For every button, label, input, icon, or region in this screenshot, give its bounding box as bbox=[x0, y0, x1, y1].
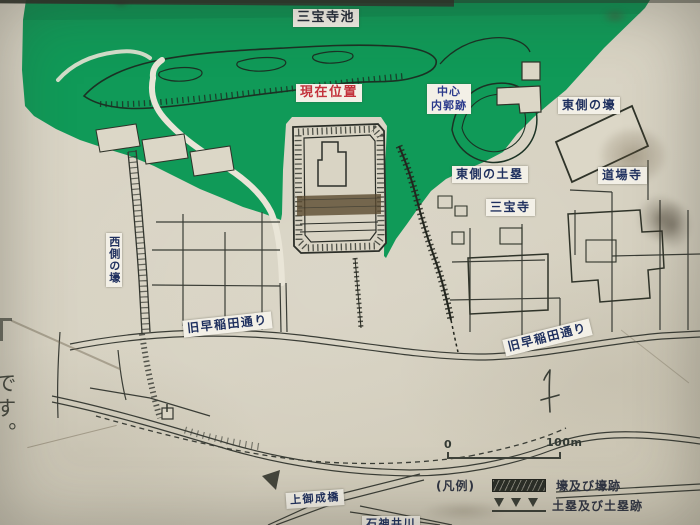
legend-heading: (凡例) bbox=[436, 477, 475, 494]
triangle-icon bbox=[494, 498, 504, 507]
label-pond-name: 三宝寺池 bbox=[293, 9, 359, 27]
label-inner-ward-line2: 内郭跡 bbox=[431, 99, 467, 113]
legend-earthwork-label: 土塁及び土塁跡 bbox=[552, 497, 643, 514]
label-east-moat: 東側の壕 bbox=[558, 97, 620, 114]
label-inner-ward: 中心 内郭跡 bbox=[427, 84, 471, 114]
triangle-icon bbox=[511, 498, 521, 507]
label-shakujii-river: 石神井川 bbox=[362, 516, 420, 525]
clipped-character-fragment bbox=[0, 318, 12, 341]
label-east-earthwork: 東側の土塁 bbox=[452, 166, 528, 183]
map-sign-photo: 三宝寺池 現在位置 中心 内郭跡 東側の壕 道場寺 東側の土塁 三宝寺 西側の壕… bbox=[0, 0, 700, 525]
label-current-location: 現在位置 bbox=[296, 84, 362, 102]
scale-start-label: 0 bbox=[444, 438, 452, 451]
west-moat-strip bbox=[128, 150, 173, 419]
label-sanpoji-temple: 三宝寺 bbox=[486, 199, 535, 216]
triangle-icon bbox=[528, 498, 538, 507]
castle-enclosure bbox=[293, 124, 386, 253]
photo-top-strip bbox=[0, 0, 700, 3]
legend-earthwork-underline bbox=[492, 510, 546, 512]
side-text-fragment: です。 bbox=[0, 372, 20, 447]
label-inner-ward-line1: 中心 bbox=[431, 85, 467, 99]
label-dojo-temple: 道場寺 bbox=[598, 167, 647, 184]
legend-moat-label: 壕及び壕跡 bbox=[556, 477, 621, 494]
north-arrow-icon bbox=[534, 360, 564, 416]
scale-end-label: 100m bbox=[546, 436, 582, 449]
legend-moat-symbol bbox=[492, 479, 546, 492]
map-drawing bbox=[0, 0, 700, 525]
label-west-moat: 西側の壕 bbox=[106, 233, 122, 287]
scale-bar bbox=[447, 457, 561, 459]
